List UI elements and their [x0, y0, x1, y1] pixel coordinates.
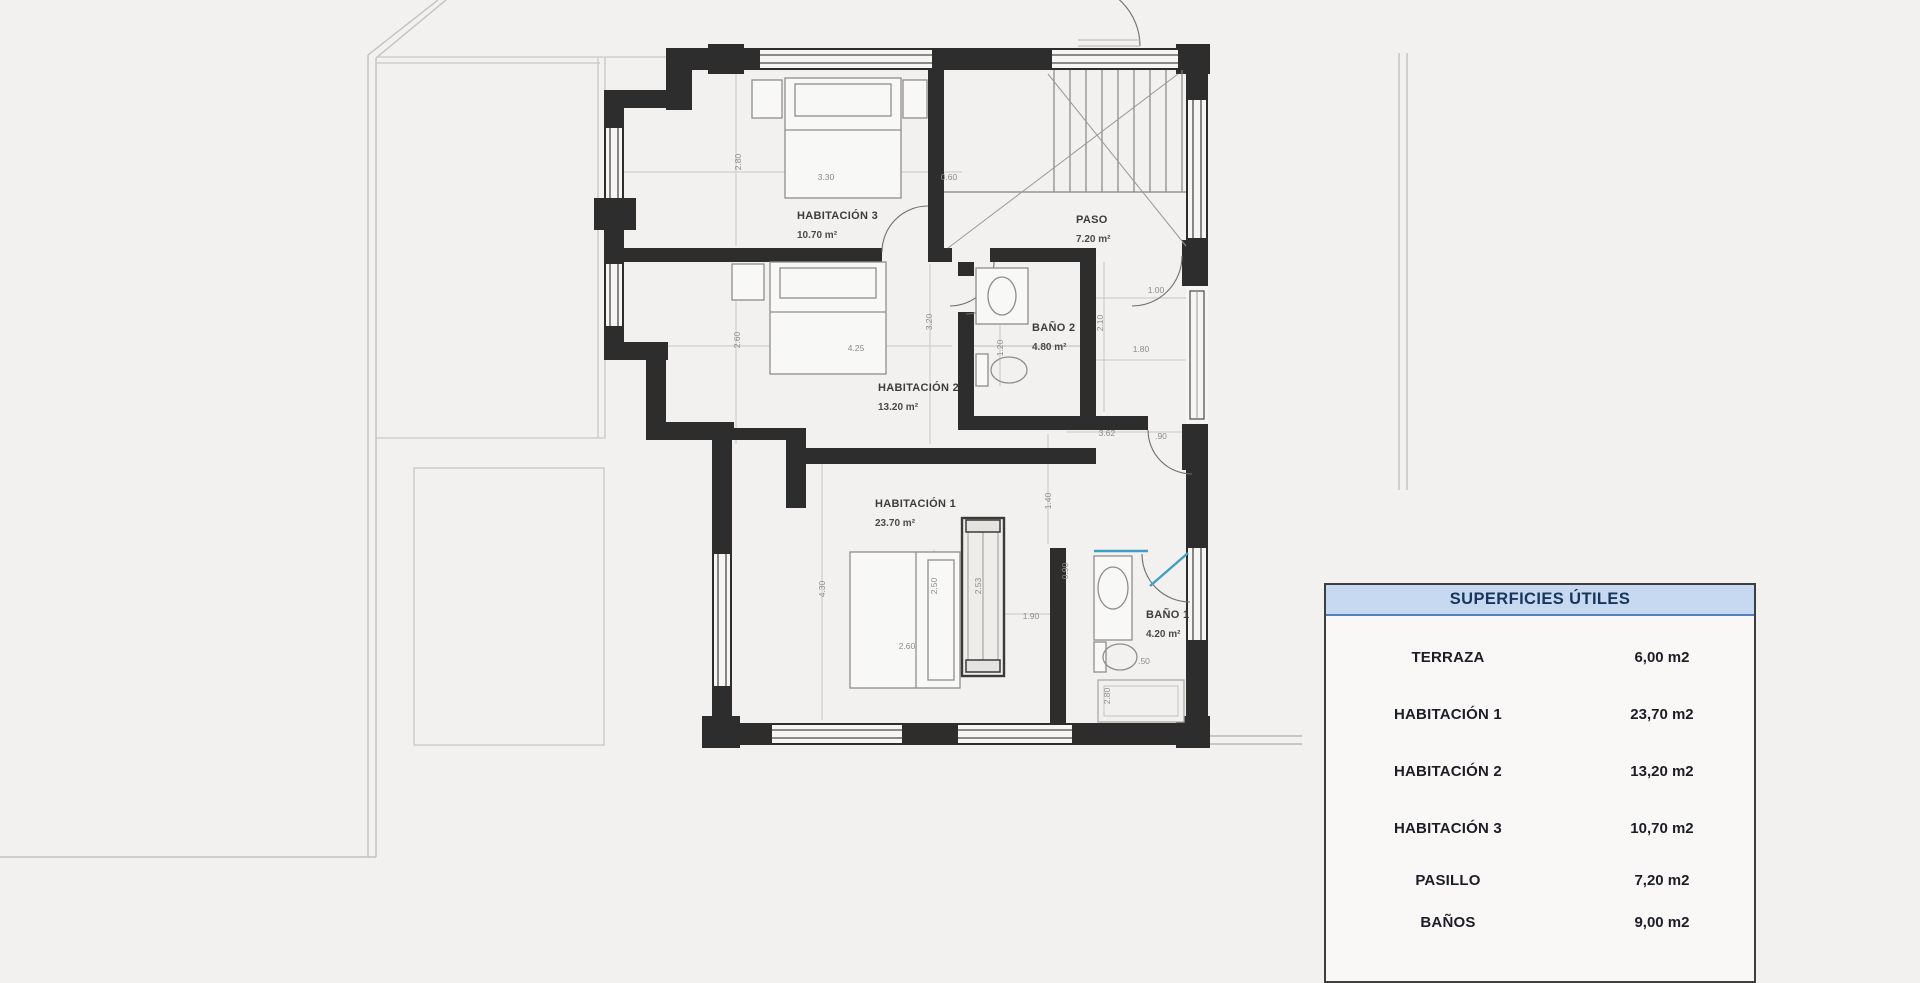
dim-label: .50	[1138, 656, 1150, 666]
toilet-bano1	[1094, 642, 1137, 672]
row-label: HABITACIÓN 3	[1326, 820, 1570, 837]
row-value: 23,70 m2	[1570, 706, 1754, 723]
dim-label: 4.30	[817, 580, 827, 597]
bed-hab2	[732, 262, 886, 374]
dim-label: 1.00	[1148, 285, 1165, 295]
window-icon	[1188, 100, 1206, 238]
table-row: HABITACIÓN 1 23,70 m2	[1326, 686, 1754, 743]
window-icon	[606, 128, 622, 198]
dim-label: 0.90	[1060, 562, 1070, 579]
window-icon	[958, 725, 1072, 743]
pillar-block	[702, 716, 740, 748]
dim-label: 3.20	[924, 313, 934, 330]
room-label-hab3: HABITACIÓN 3	[797, 209, 878, 222]
nightstand	[732, 264, 764, 300]
pillar-block	[594, 198, 636, 230]
room-label-bano1: BAÑO 1	[1146, 608, 1189, 621]
sink-bano1	[1094, 556, 1132, 640]
surfaces-table-header: SUPERFICIES ÚTILES	[1326, 585, 1754, 616]
wardrobe-hab1	[962, 518, 1004, 676]
room-area-bano2: 4.80 m²	[1032, 342, 1067, 353]
dim-label: 0.60	[941, 172, 958, 182]
dim-label: 1.40	[1043, 492, 1053, 509]
exterior-stub-lines	[1207, 736, 1302, 744]
dim-label: 3.30	[818, 172, 835, 182]
bed-hab1	[850, 552, 960, 688]
sink-bano2	[976, 268, 1028, 324]
window-icon	[1052, 50, 1178, 68]
room-area-hab1: 23.70 m²	[875, 518, 916, 529]
table-row: PASILLO 7,20 m2	[1326, 852, 1754, 909]
table-row: BAÑOS 9,00 m2	[1326, 907, 1754, 937]
table-row: HABITACIÓN 3 10,70 m2	[1326, 800, 1754, 857]
dim-label: 3.62	[1099, 428, 1116, 438]
room-label-hab1: HABITACIÓN 1	[875, 497, 956, 510]
room-area-bano1: 4.20 m²	[1146, 629, 1181, 640]
door-arc-bano1	[1142, 554, 1190, 602]
room-area-hab2: 13.20 m²	[878, 402, 919, 413]
room-label-paso: PASO	[1076, 214, 1108, 226]
room-area-hab3: 10.70 m²	[797, 230, 838, 241]
room-label-bano2: BAÑO 2	[1032, 321, 1075, 334]
dim-label: .90	[1155, 431, 1167, 441]
dim-label: 2.50	[929, 577, 939, 594]
surfaces-table: SUPERFICIES ÚTILES TERRAZA 6,00 m2 HABIT…	[1324, 583, 1756, 983]
window-icon	[760, 50, 932, 68]
door-arc-hab3	[882, 206, 928, 252]
row-value: 13,20 m2	[1570, 763, 1754, 780]
dim-label: 2.10	[1095, 314, 1105, 331]
pillar-block	[1182, 240, 1208, 286]
dim-label: 1.80	[1133, 344, 1150, 354]
dim-label: 4.25	[848, 343, 865, 353]
window-icon	[606, 264, 622, 326]
terrace-lines	[376, 57, 688, 745]
bed-hab3	[752, 78, 927, 198]
window-icon	[714, 554, 730, 686]
door-arc-balcony	[1078, 0, 1140, 46]
wall-closet	[1186, 286, 1208, 424]
pillar-block	[1182, 424, 1208, 470]
row-label: BAÑOS	[1326, 914, 1570, 931]
pillar-block	[1176, 44, 1210, 74]
room-area-paso: 7.20 m²	[1076, 234, 1111, 245]
window-icon	[772, 725, 902, 743]
row-value: 9,00 m2	[1570, 914, 1754, 931]
table-row: HABITACIÓN 2 13,20 m2	[1326, 743, 1754, 800]
room-label-hab2: HABITACIÓN 2	[878, 381, 959, 394]
staircase	[944, 70, 1186, 248]
row-value: 7,20 m2	[1570, 872, 1754, 889]
row-value: 6,00 m2	[1570, 649, 1754, 666]
dim-label: 2.60	[899, 641, 916, 651]
row-label: HABITACIÓN 1	[1326, 706, 1570, 723]
window-icon	[1188, 548, 1206, 640]
row-value: 10,70 m2	[1570, 820, 1754, 837]
table-row: TERRAZA 6,00 m2	[1326, 629, 1754, 686]
dim-label: 1.90	[1023, 611, 1040, 621]
pool-outline	[414, 468, 604, 745]
toilet-bano2	[976, 354, 1027, 386]
dim-label: 2.80	[733, 153, 743, 170]
dim-label: 2.80	[1102, 687, 1112, 704]
nightstand	[903, 80, 927, 118]
row-label: TERRAZA	[1326, 649, 1570, 666]
nightstand	[752, 80, 782, 118]
floorplan-page: { "plan": { "rooms": [ {"name": "HABITAC…	[0, 0, 1920, 920]
dim-label: 1.20	[995, 339, 1005, 356]
row-label: HABITACIÓN 2	[1326, 763, 1570, 780]
dim-label: 2.60	[732, 331, 742, 348]
pillar-block	[708, 44, 744, 74]
dim-label: 2.53	[973, 577, 983, 594]
row-label: PASILLO	[1326, 872, 1570, 889]
